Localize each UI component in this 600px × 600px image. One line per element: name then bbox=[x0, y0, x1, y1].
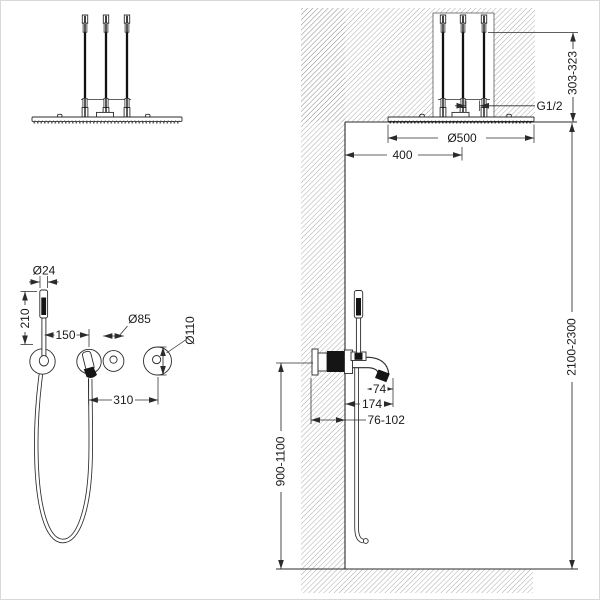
dim-install-height-range: 2100-2300 bbox=[565, 318, 579, 376]
dim-trim-diameter: Ø85 bbox=[128, 312, 151, 326]
handshower-handle-side bbox=[356, 318, 360, 354]
dim-embed-depth-range: 76-102 bbox=[368, 413, 406, 427]
dim-inlet-thread: G1/2 bbox=[537, 99, 563, 113]
dim-head-diameter: Ø500 bbox=[447, 131, 477, 145]
floor-hatch bbox=[301, 569, 533, 593]
valve-flange bbox=[312, 349, 318, 375]
center-bracket bbox=[97, 112, 114, 117]
center-bracket bbox=[452, 112, 469, 117]
dim-mixer-height-range: 900-1100 bbox=[274, 436, 288, 486]
handshower-handle bbox=[42, 318, 46, 356]
installation-drawing-page: Ø500 400 303-323 G1/2 2100-2300 900-1100… bbox=[0, 0, 600, 600]
dim-holder-to-spout: 150 bbox=[55, 328, 75, 342]
dim-handshower-diameter: Ø24 bbox=[33, 264, 56, 278]
valve-body bbox=[318, 353, 327, 371]
dim-handshower-length: 210 bbox=[18, 308, 32, 328]
dim-head-height-range: 303-323 bbox=[566, 51, 580, 95]
holder-knuckle bbox=[39, 356, 48, 366]
valve-cartridge bbox=[327, 351, 344, 372]
shower-head-plate bbox=[32, 117, 182, 121]
hose-end-fitting bbox=[363, 539, 368, 544]
dim-spout-offset: 74 bbox=[373, 382, 387, 396]
dim-head-offset: 400 bbox=[392, 148, 412, 162]
dim-spout-projection: 174 bbox=[362, 397, 382, 411]
dim-spout-to-mixer: 310 bbox=[113, 393, 133, 407]
installation-drawing: Ø500 400 303-323 G1/2 2100-2300 900-1100… bbox=[0, 0, 600, 600]
wall-hatch bbox=[301, 8, 345, 569]
